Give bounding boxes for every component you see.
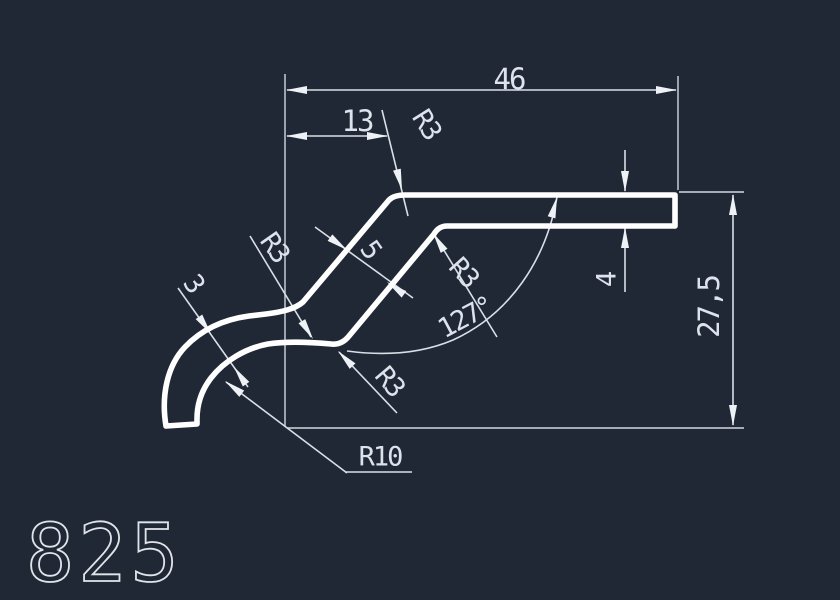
dim-bend-angle-label: 127°: [433, 291, 498, 345]
part-number: 825: [26, 507, 183, 600]
arrow-r3-top: [393, 169, 406, 191]
dim-fillet-bottom-label: R3: [368, 361, 411, 403]
arrow-13-left: [286, 132, 307, 140]
arrow-275-top: [729, 194, 737, 215]
dim-fillet-left-label: R3: [253, 227, 295, 269]
dimension-labels: 46 13 R3 R3 3 5 R3 R3 127° 4 27,5 R10: [176, 62, 726, 472]
cad-drawing-canvas: 46 13 R3 R3 3 5 R3 R3 127° 4 27,5 R10 82…: [0, 0, 840, 600]
dim-flange-thickness-label: 4: [591, 272, 622, 287]
arrow-127-top: [548, 196, 561, 218]
dim-total-width-label: 46: [494, 62, 525, 96]
arrow-3-inner: [231, 365, 250, 387]
arrow-275-bottom: [729, 405, 737, 426]
technical-drawing: 46 13 R3 R3 3 5 R3 R3 127° 4 27,5 R10 82…: [0, 0, 840, 600]
dim-total-height-label: 27,5: [692, 276, 726, 338]
arrow-46-left: [286, 86, 307, 94]
arrow-r3-left: [298, 319, 316, 341]
arrow-4-top: [621, 171, 629, 192]
dim-hook-radius-label: R10: [359, 441, 403, 472]
arrow-4-bottom: [621, 227, 629, 248]
dim-fillet-top-label: R3: [405, 104, 447, 145]
arrow-46-right: [656, 86, 677, 94]
dim-offset-width-label: 13: [342, 104, 373, 138]
